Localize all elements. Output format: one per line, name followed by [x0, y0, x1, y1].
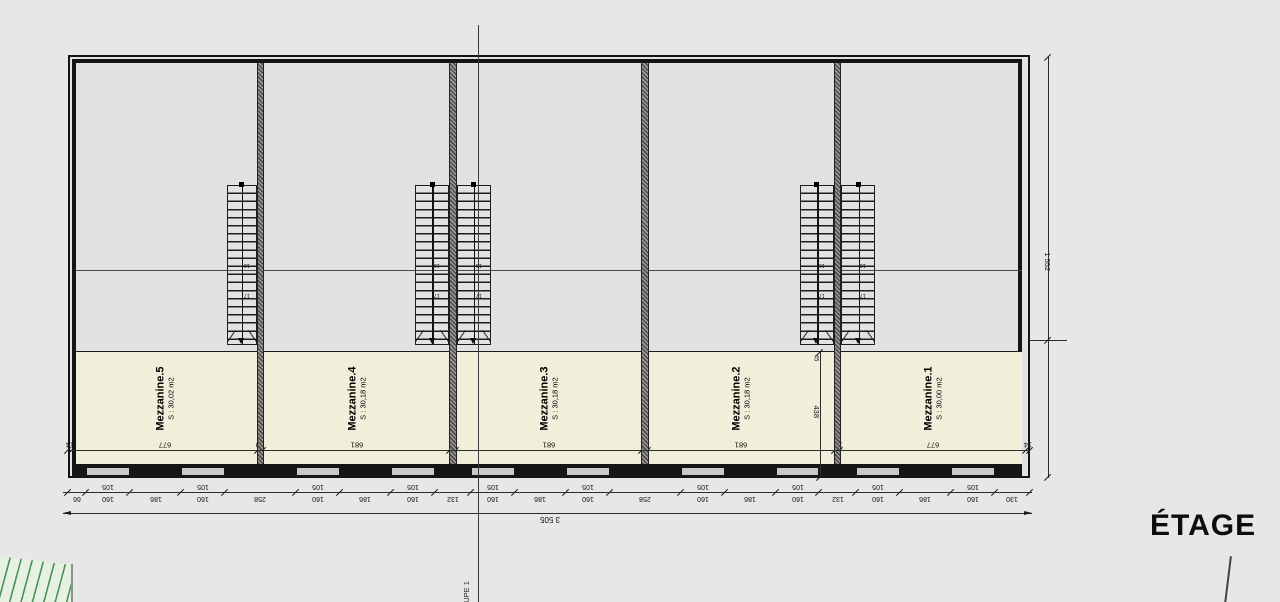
- stair-direction-arrow: [238, 338, 244, 344]
- bottom-chain-dim: 186: [359, 495, 371, 502]
- window-row-dim: 105: [102, 483, 114, 490]
- bottom-chain-dim: 160: [792, 495, 804, 502]
- total-arrow-left: [63, 511, 71, 515]
- bottom-total-line: [63, 513, 1032, 514]
- interior-dim-line: [70, 450, 1028, 451]
- bottom-wall-opening: [952, 468, 994, 475]
- partition-wall: [257, 63, 265, 464]
- stair-direction-arrow: [855, 338, 861, 344]
- window-row-dim: 105: [792, 483, 804, 490]
- green-hatch-edge-line: [71, 564, 73, 602]
- mezz-depth-dim: 438: [813, 405, 821, 418]
- room-area: S : 30,18 m2: [551, 334, 560, 464]
- room-name: Mezzanine.4: [346, 334, 358, 464]
- bottom-chain-dim: 130: [1007, 495, 1019, 502]
- room-area: S : 30,18 m2: [358, 334, 367, 464]
- room-label: Mezzanine.2S : 30,18 m2: [731, 334, 752, 464]
- bottom-wall-opening: [392, 468, 434, 475]
- bottom-wall-opening: [567, 468, 609, 475]
- stair-step-number: 17: [244, 292, 250, 297]
- staircase: [800, 185, 834, 345]
- staircase: [841, 185, 875, 345]
- stair-direction-arrow: [813, 338, 819, 344]
- stair-step-number: 16: [819, 262, 825, 267]
- bottom-chain-dim: 66: [73, 495, 81, 502]
- stair-step-number: 17: [860, 292, 866, 297]
- room-name: Mezzanine.5: [154, 334, 166, 464]
- floor-plan-canvas[interactable]: 6616010518616010525816010518616010513216…: [0, 0, 1280, 602]
- stair-step-number: 17: [434, 292, 440, 297]
- interior-chain-dim: 14: [66, 441, 74, 449]
- stair-step-number: 16: [244, 262, 250, 267]
- bottom-chain-dim: 160: [102, 495, 114, 502]
- section-cut-line: [478, 25, 479, 602]
- bottom-wall-opening: [682, 468, 724, 475]
- room-area: S : 30,00 m2: [935, 334, 944, 464]
- bottom-chain-dim: 186: [535, 495, 547, 502]
- mezz-level-tick-line: [1030, 340, 1067, 341]
- room-name: Mezzanine.3: [538, 334, 550, 464]
- stair-step-number: 16: [860, 262, 866, 267]
- bottom-wall-opening: [857, 468, 899, 475]
- bottom-chain-dim: 258: [639, 495, 651, 502]
- window-row-dim: 105: [312, 483, 324, 490]
- bottom-chain-dim: 132: [447, 495, 459, 502]
- stair-step-number: 16: [434, 262, 440, 267]
- total-arrow-right: [1024, 511, 1032, 515]
- bottom-chain-dim: 258: [255, 495, 267, 502]
- stair-post: [239, 182, 244, 187]
- bottom-chain-dim: 160: [872, 495, 884, 502]
- window-row-dim: 105: [487, 483, 499, 490]
- partition-wall: [834, 63, 842, 464]
- staircase: [415, 185, 449, 345]
- mezzanine-slab-line: [76, 270, 1022, 271]
- bottom-chain-dim: 160: [197, 495, 209, 502]
- stair-post: [471, 182, 476, 187]
- bottom-wall-opening: [182, 468, 224, 475]
- sheet-title: ÉTAGE: [1150, 509, 1256, 543]
- bottom-chain-dim: 160: [697, 495, 709, 502]
- interior-chain-dim: 14: [1024, 441, 1032, 449]
- partition-wall: [449, 63, 457, 464]
- dim-tick: [1044, 474, 1051, 481]
- bottom-chain-dim: 160: [312, 495, 324, 502]
- bottom-chain-dim: 186: [919, 495, 931, 502]
- room-label: Mezzanine.4S : 30,18 m2: [346, 334, 367, 464]
- bottom-wall-opening: [87, 468, 129, 475]
- stair-post: [430, 182, 435, 187]
- stair-direction-arrow: [429, 338, 435, 344]
- mezz-edge-dim: 45: [812, 355, 818, 362]
- bottom-chain-line: [63, 492, 1032, 493]
- partition-wall: [641, 63, 649, 464]
- section-label: COUPE 1: [462, 581, 471, 602]
- room-name: Mezzanine.2: [731, 334, 743, 464]
- window-row-dim: 105: [197, 483, 209, 490]
- stair-direction-arrow: [470, 338, 476, 344]
- bottom-wall-opening: [297, 468, 339, 475]
- total-width-dim: 3 505: [540, 515, 560, 523]
- room-label: Mezzanine.1S : 30,00 m2: [923, 334, 944, 464]
- bottom-chain-dim: 160: [582, 495, 594, 502]
- bottom-chain-dim: 160: [407, 495, 419, 502]
- room-label: Mezzanine.3S : 30,18 m2: [538, 334, 559, 464]
- bottom-chain-dim: 186: [150, 495, 162, 502]
- bottom-chain-dim: 160: [487, 495, 499, 502]
- bottom-chain-dim: 132: [832, 495, 844, 502]
- stair-post: [814, 182, 819, 187]
- bottom-chain-dim: 186: [744, 495, 756, 502]
- room-label: Mezzanine.5S : 30,02 m2: [154, 334, 175, 464]
- green-hatch-area: [0, 550, 73, 602]
- window-row-dim: 105: [872, 483, 884, 490]
- window-row-dim: 105: [697, 483, 709, 490]
- total-height-dim: 1 552: [1044, 252, 1052, 271]
- room-area: S : 30,02 m2: [166, 334, 175, 464]
- room-name: Mezzanine.1: [923, 334, 935, 464]
- staircase: [457, 185, 491, 345]
- room-area: S : 30,18 m2: [743, 334, 752, 464]
- staircase: [227, 185, 257, 345]
- stair-post: [856, 182, 861, 187]
- title-leader-line: [1224, 556, 1231, 602]
- bottom-chain-dim: 160: [967, 495, 979, 502]
- window-row-dim: 105: [582, 483, 594, 490]
- bottom-wall-opening: [777, 468, 819, 475]
- stair-step-number: 17: [819, 292, 825, 297]
- window-row-dim: 105: [967, 483, 979, 490]
- window-row-dim: 105: [407, 483, 419, 490]
